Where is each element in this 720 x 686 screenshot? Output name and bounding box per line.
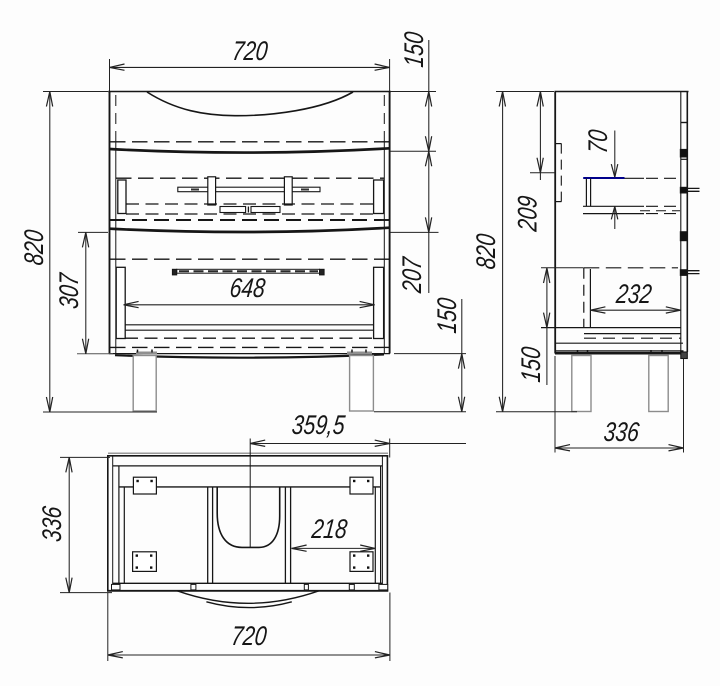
- svg-text:150: 150: [517, 345, 547, 384]
- svg-text:720: 720: [230, 622, 269, 652]
- svg-text:209: 209: [513, 194, 543, 234]
- svg-text:720: 720: [231, 37, 270, 67]
- svg-text:648: 648: [228, 274, 267, 304]
- svg-text:232: 232: [614, 280, 654, 310]
- svg-text:359,5: 359,5: [290, 411, 346, 441]
- svg-text:336: 336: [38, 504, 68, 543]
- svg-text:820: 820: [20, 228, 50, 267]
- svg-text:336: 336: [602, 418, 641, 448]
- svg-text:150: 150: [400, 30, 430, 69]
- svg-text:307: 307: [55, 271, 85, 311]
- svg-text:150: 150: [433, 296, 463, 335]
- svg-text:218: 218: [309, 515, 349, 545]
- svg-text:70: 70: [584, 128, 614, 155]
- svg-text:820: 820: [472, 232, 502, 271]
- svg-text:207: 207: [398, 255, 428, 296]
